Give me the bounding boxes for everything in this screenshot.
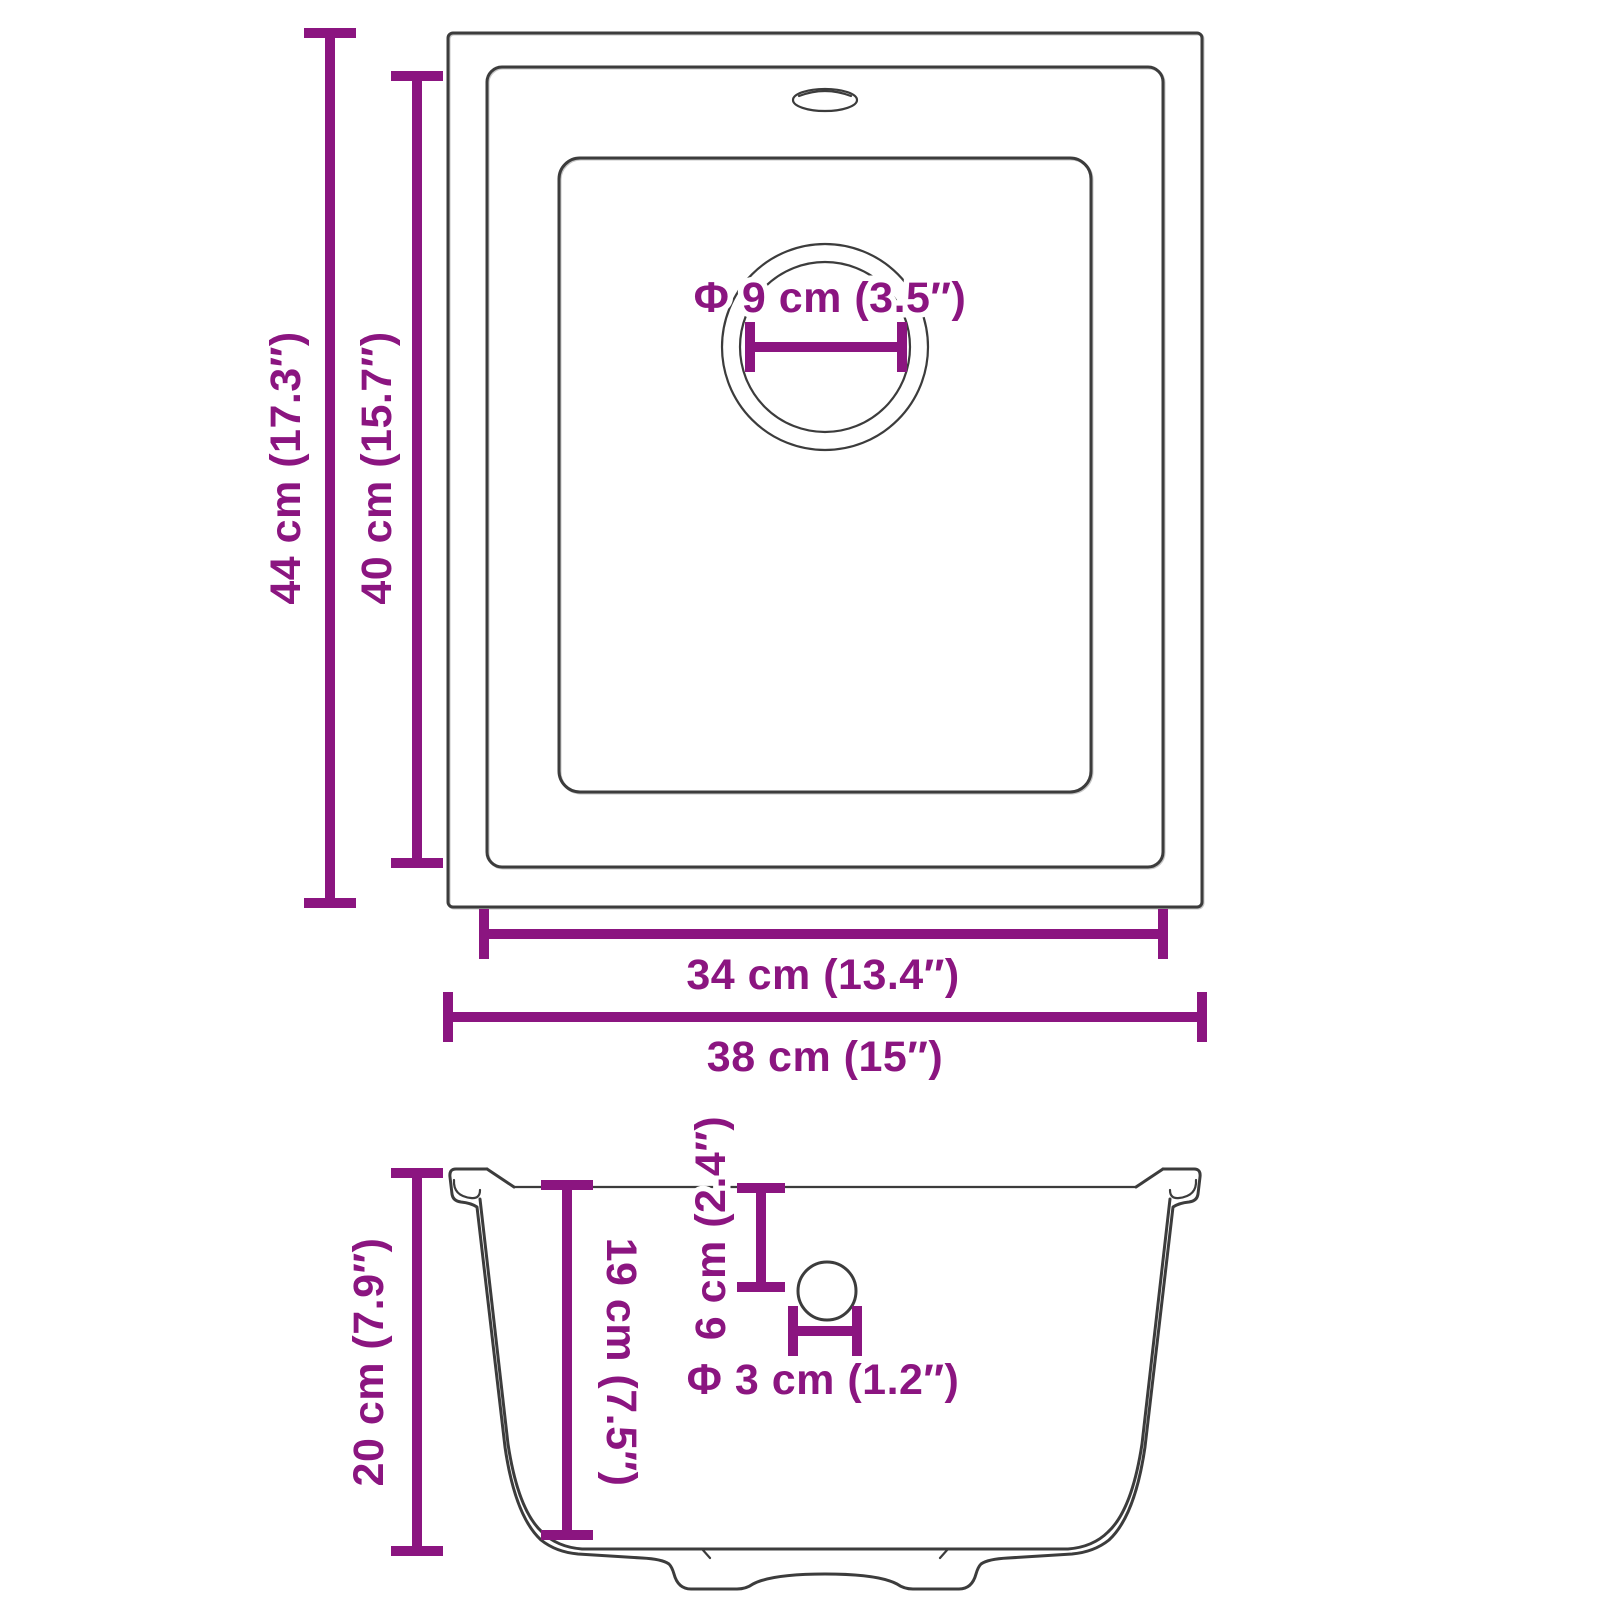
sink-dimension-diagram: 44 cm (17.3″) 40 cm (15.7″) 34 cm (13.4″…: [0, 0, 1600, 1600]
plan-inner-rim: [487, 67, 1163, 867]
dim-label-outer-width: 38 cm (15″): [707, 1033, 943, 1081]
dim-line-6cm: [737, 1188, 785, 1287]
plan-outer-edge: [448, 33, 1202, 907]
dim-line-19cm: [541, 1185, 593, 1535]
section-right-rim-curl: [1170, 1180, 1196, 1198]
section-left-hook-slope: [487, 1169, 514, 1187]
dim-label-inner-depth: 40 cm (15.7″): [353, 331, 401, 604]
dim-line-20cm: [391, 1173, 443, 1551]
overflow-hole: [798, 1262, 856, 1320]
faucet-hole: [793, 89, 857, 111]
dim-label-drain-diameter: Φ 9 cm (3.5″): [694, 274, 967, 322]
plan-dimensions: 44 cm (17.3″) 40 cm (15.7″) 34 cm (13.4″…: [262, 33, 1202, 1081]
dim-label-inner-width: 34 cm (13.4″): [686, 951, 959, 999]
dim-label-overflow-offset: 6 cm (2.4″): [687, 1116, 735, 1340]
plan-view: [448, 33, 1202, 907]
plan-basin: [559, 158, 1091, 792]
section-left-rim-curl: [454, 1180, 480, 1198]
section-dimensions: 20 cm (7.9″) 19 cm (7.5″) 6 cm (2.4″) Φ …: [345, 1116, 959, 1551]
section-right-hook-slope: [1136, 1169, 1163, 1187]
dim-label-outer-depth: 44 cm (17.3″): [262, 331, 310, 604]
dim-line-44cm: [304, 33, 356, 903]
dim-label-total-height: 20 cm (7.9″): [345, 1238, 393, 1487]
dim-label-overflow-diameter: Φ 3 cm (1.2″): [687, 1356, 960, 1404]
dim-label-bowl-depth: 19 cm (7.5″): [597, 1238, 645, 1487]
dim-line-drain-9cm: [750, 322, 902, 372]
diagram-canvas: 44 cm (17.3″) 40 cm (15.7″) 34 cm (13.4″…: [0, 0, 1600, 1600]
